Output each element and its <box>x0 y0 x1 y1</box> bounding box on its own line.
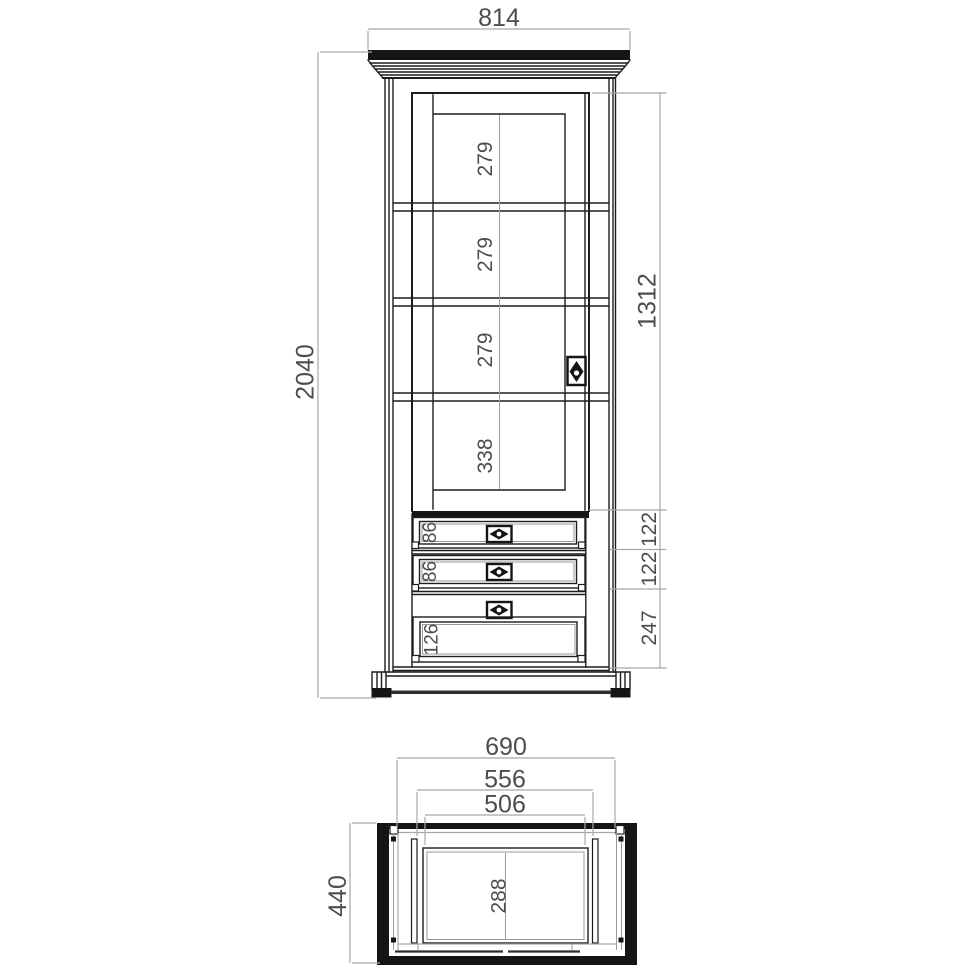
bottom-drawer-left-notch <box>412 656 419 663</box>
door-stile-lines <box>433 94 585 510</box>
dim-inner-width-value: 556 <box>484 766 526 794</box>
plinth-left-foot <box>372 688 392 698</box>
plan-right-front-block <box>619 837 624 842</box>
drawer-2-handle-keyhole <box>497 570 502 575</box>
drawing-canvas: 279 279 279 338 86 <box>0 0 970 971</box>
plinth-lines <box>372 672 630 689</box>
plan-right-hinge-bar <box>593 839 599 943</box>
drawer-2-right-notch <box>579 585 586 592</box>
drawer-divider-1 <box>413 551 585 555</box>
plan-left-rear-block <box>391 938 396 943</box>
dim-total-height-lines <box>318 52 376 698</box>
cornice-molding-lines <box>368 60 630 78</box>
door-handle-icon <box>568 357 586 385</box>
drawer-1-handle-icon <box>487 526 512 542</box>
plinth-bottom-rail <box>391 691 611 695</box>
compartment-3-label: 279 <box>474 332 497 367</box>
door-frame <box>412 93 589 511</box>
dim-outer-width-value: 690 <box>485 733 527 761</box>
plinth-right-foot <box>611 688 631 698</box>
bottom-drawer: 126 <box>412 602 585 662</box>
plan-right-rear-block <box>619 938 624 943</box>
cornice <box>368 50 630 78</box>
bottom-drawer-label: 126 <box>422 624 443 656</box>
dim-depth-value: 440 <box>324 875 352 917</box>
dim-total-height: 2040 <box>291 52 376 698</box>
compartment-4-label: 338 <box>474 438 497 473</box>
compartment-1-label: 279 <box>474 141 497 176</box>
drawer-1-label: 86 <box>420 522 441 543</box>
plan-right-corner-post <box>616 826 624 835</box>
drawer-2-left-notch <box>412 585 419 592</box>
drawer-1-handle-keyhole <box>497 532 502 537</box>
dim-segment-3-value: 247 <box>638 610 661 645</box>
drawer-divider-2 <box>413 592 585 595</box>
bottom-drawer-handle-keyhole <box>497 608 502 613</box>
bottom-drawer-panel <box>420 622 577 657</box>
plan-left-front-block <box>391 837 396 842</box>
bottom-drawer-panel-inner <box>423 625 576 655</box>
cornice-top-board <box>368 50 630 60</box>
dim-depth-lines <box>350 823 380 963</box>
compartment-labels: 279 279 279 338 <box>474 141 497 473</box>
drawer-1-left-notch <box>412 542 419 549</box>
dim-segment-2-value: 122 <box>638 551 661 586</box>
compartment-2-label: 279 <box>474 237 497 272</box>
dim-door-height-value: 1312 <box>633 273 661 329</box>
dim-total-width: 814 <box>368 4 630 50</box>
drawer-2-label: 86 <box>420 561 441 582</box>
dim-total-width-lines <box>368 29 630 50</box>
door-handle-keyhole <box>574 370 579 375</box>
dim-segment-1-value: 122 <box>638 512 661 547</box>
drawer-2-handle-icon <box>487 564 512 580</box>
plinth <box>372 672 631 698</box>
top-view: 288 690 556 506 440 <box>324 733 637 965</box>
bottom-drawer-right-notch <box>578 656 585 663</box>
dim-door-height: 1312 <box>589 93 667 510</box>
dim-right-segments: 122 122 247 <box>610 510 667 668</box>
drawer-1: 86 <box>412 518 585 549</box>
dim-depth: 440 <box>324 823 380 963</box>
dim-opening-width-value: 506 <box>484 791 526 819</box>
dim-total-height-value: 2040 <box>291 344 319 400</box>
dim-total-width-value: 814 <box>478 4 520 32</box>
plan-left-hinge-bar <box>412 839 418 943</box>
plan-inner-depth-value: 288 <box>487 878 510 913</box>
furniture-dimension-drawing: 279 279 279 338 86 <box>0 0 970 971</box>
bottom-drawer-handle-icon <box>487 602 512 618</box>
drawer-2: 86 <box>412 556 585 592</box>
front-view: 279 279 279 338 86 <box>291 4 666 698</box>
drawer-1-right-notch <box>579 542 586 549</box>
